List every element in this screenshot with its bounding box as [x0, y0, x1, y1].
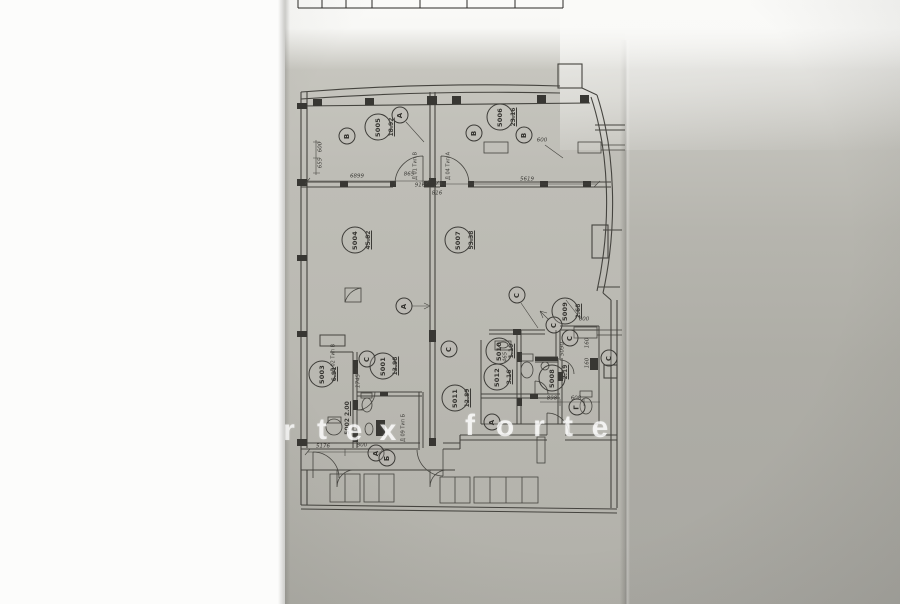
axis-marker: В: [466, 125, 483, 142]
floor-plan-drawing: [0, 0, 900, 604]
axis-marker: А: [396, 298, 413, 315]
room-area-5012: 3.16: [507, 370, 513, 385]
watermark-letter: e: [592, 411, 609, 445]
dimension-text: 898: [547, 396, 558, 402]
watermark-letter: t: [317, 413, 327, 447]
dimension-text: 600: [537, 138, 548, 144]
door-label: Д 04 Тип А: [447, 152, 452, 180]
axis-marker: С: [509, 287, 526, 304]
axis-marker: С: [441, 341, 458, 358]
watermark-letter: r: [283, 414, 295, 448]
room-area-5011: 12.89: [465, 389, 471, 408]
dimension-text: 916: [415, 183, 426, 189]
dimension-text: 6899: [350, 174, 364, 180]
room-area-5008: 2.19: [563, 365, 569, 380]
watermark-letter: o: [496, 410, 514, 444]
watermark-letter: x: [380, 414, 397, 448]
dimension-text: 160: [585, 338, 591, 349]
axis-marker: С: [546, 317, 563, 334]
door-label: Д 02 Тип В: [332, 344, 337, 372]
dimension-text: 600: [579, 317, 590, 323]
dimension-text: 608: [571, 396, 582, 402]
room-area-5001: 13.98: [393, 357, 399, 376]
dimension-text: 465: [503, 352, 509, 363]
dimension-text: 816: [432, 191, 443, 197]
dimension-text: 5619: [520, 177, 534, 183]
table-grid-top-page: [298, 0, 563, 8]
axis-marker: С: [359, 351, 376, 368]
photo-of-floor-plan-sheet: 5001 13.98 50022.00 5003 6.91 5004 45.82…: [0, 0, 900, 604]
watermark-letter: e: [346, 414, 363, 448]
dimension-text: 655: [318, 158, 324, 169]
dimension-text: 160: [585, 358, 591, 369]
room-area-5004: 45.82: [366, 231, 372, 250]
dimension-text: 865: [404, 172, 415, 178]
axis-marker: В: [516, 127, 533, 144]
room-area-5006: 23.16: [511, 108, 517, 127]
axis-marker: Б: [379, 450, 396, 467]
watermark-letter: r: [533, 410, 545, 444]
dimension-text: 1745: [356, 374, 362, 388]
dimension-text: 5090: [560, 342, 566, 356]
watermark-letter: t: [563, 410, 573, 444]
axis-marker: А: [392, 107, 409, 124]
watermark-letter: f: [465, 409, 475, 443]
axis-marker: В: [339, 128, 356, 145]
door-label: Д 09 Тип Б: [402, 414, 407, 442]
dimension-text: 600: [318, 142, 324, 153]
room-area-5010: 1.19: [509, 344, 515, 359]
axis-marker: С: [601, 350, 618, 367]
room-area-5007: 53.38: [469, 231, 475, 250]
